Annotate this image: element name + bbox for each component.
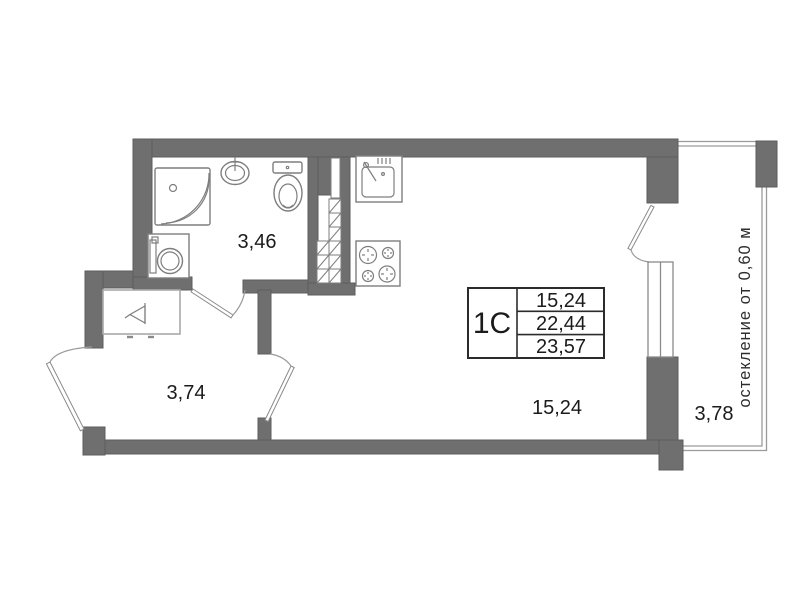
unit-card: 1С 15,24 22,44 23,57 bbox=[468, 288, 604, 358]
living-room-area-label: 15,24 bbox=[532, 397, 582, 419]
balcony-door-icon bbox=[628, 205, 654, 262]
unit-area-total: 22,44 bbox=[536, 313, 586, 335]
stove-icon bbox=[356, 241, 400, 286]
window-icon bbox=[648, 262, 673, 357]
bathroom-door-icon bbox=[191, 289, 245, 318]
closet-icon bbox=[103, 290, 180, 337]
unit-number: 1С bbox=[473, 307, 511, 340]
wall-shaft-left bbox=[318, 157, 331, 195]
wall-bathroom-bottom-right bbox=[243, 280, 308, 293]
washbasin-icon bbox=[221, 157, 249, 185]
living-room-door-icon bbox=[265, 354, 294, 422]
shower-icon bbox=[155, 168, 210, 225]
wall-bottom bbox=[103, 440, 683, 454]
wall-shaft-bottom bbox=[308, 283, 355, 295]
pier-balcony-corner bbox=[756, 141, 777, 187]
wall-top bbox=[133, 139, 678, 157]
balcony-area-label: 3,78 bbox=[695, 403, 734, 425]
unit-area-living: 15,24 bbox=[536, 290, 586, 312]
hallway-area-label: 3,74 bbox=[167, 382, 206, 404]
entrance-door-icon bbox=[46, 347, 92, 431]
wall-bottom-right-block bbox=[659, 440, 683, 470]
washing-machine-icon bbox=[148, 234, 189, 278]
bathroom-area-label: 3,46 bbox=[238, 231, 277, 253]
toilet-icon bbox=[273, 162, 302, 211]
wall-hall-room-divider bbox=[258, 290, 271, 354]
floor-plan: 1С 15,24 22,44 23,57 3,46 3,74 15,24 3,7… bbox=[0, 0, 799, 600]
kitchen-sink-icon bbox=[356, 156, 402, 202]
glazing-note-label: остекление от 0,60 м bbox=[736, 226, 754, 407]
wall-bottom-left-block bbox=[83, 427, 105, 455]
wall-bathroom-bottom-left bbox=[133, 277, 192, 290]
pier-right-lower bbox=[647, 357, 678, 440]
floor-plan-drawing: 1С 15,24 22,44 23,57 3,46 3,74 15,24 3,7… bbox=[0, 0, 799, 600]
unit-area-total-balcony: 23,57 bbox=[536, 336, 586, 358]
pier-right-upper bbox=[647, 157, 678, 203]
wall-hall-left bbox=[85, 271, 103, 348]
